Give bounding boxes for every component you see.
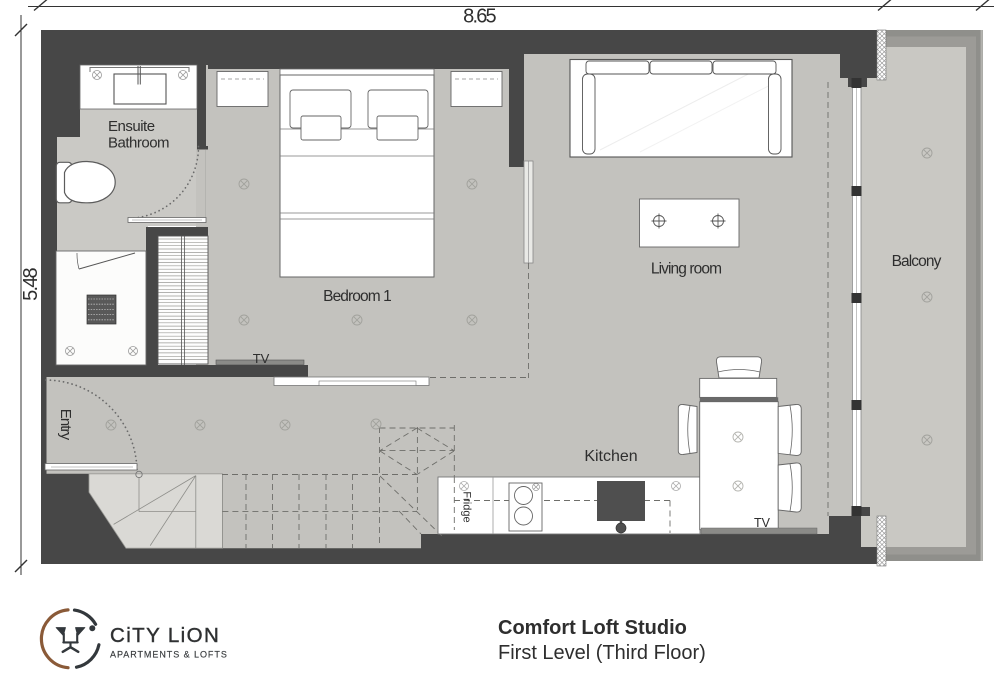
svg-text:Kitchen: Kitchen bbox=[584, 448, 637, 465]
svg-text:APARTMENTS & LOFTS: APARTMENTS & LOFTS bbox=[110, 650, 228, 660]
svg-text:CiTY LiON: CiTY LiON bbox=[110, 624, 220, 647]
svg-text:First Level (Third Floor): First Level (Third Floor) bbox=[498, 642, 706, 664]
svg-text:Balcony: Balcony bbox=[892, 253, 942, 270]
svg-text:Living room: Living room bbox=[651, 261, 721, 278]
svg-text:Fridge: Fridge bbox=[461, 491, 473, 522]
svg-text:Comfort Loft Studio: Comfort Loft Studio bbox=[498, 617, 687, 639]
svg-text:8.65: 8.65 bbox=[463, 6, 496, 28]
svg-text:Entry: Entry bbox=[57, 409, 74, 441]
svg-text:Bathroom: Bathroom bbox=[108, 135, 169, 152]
svg-text:Bedroom 1: Bedroom 1 bbox=[323, 288, 391, 305]
svg-text:TV: TV bbox=[253, 351, 270, 366]
svg-text:5.48: 5.48 bbox=[20, 267, 42, 300]
svg-text:Ensuite: Ensuite bbox=[108, 118, 155, 135]
